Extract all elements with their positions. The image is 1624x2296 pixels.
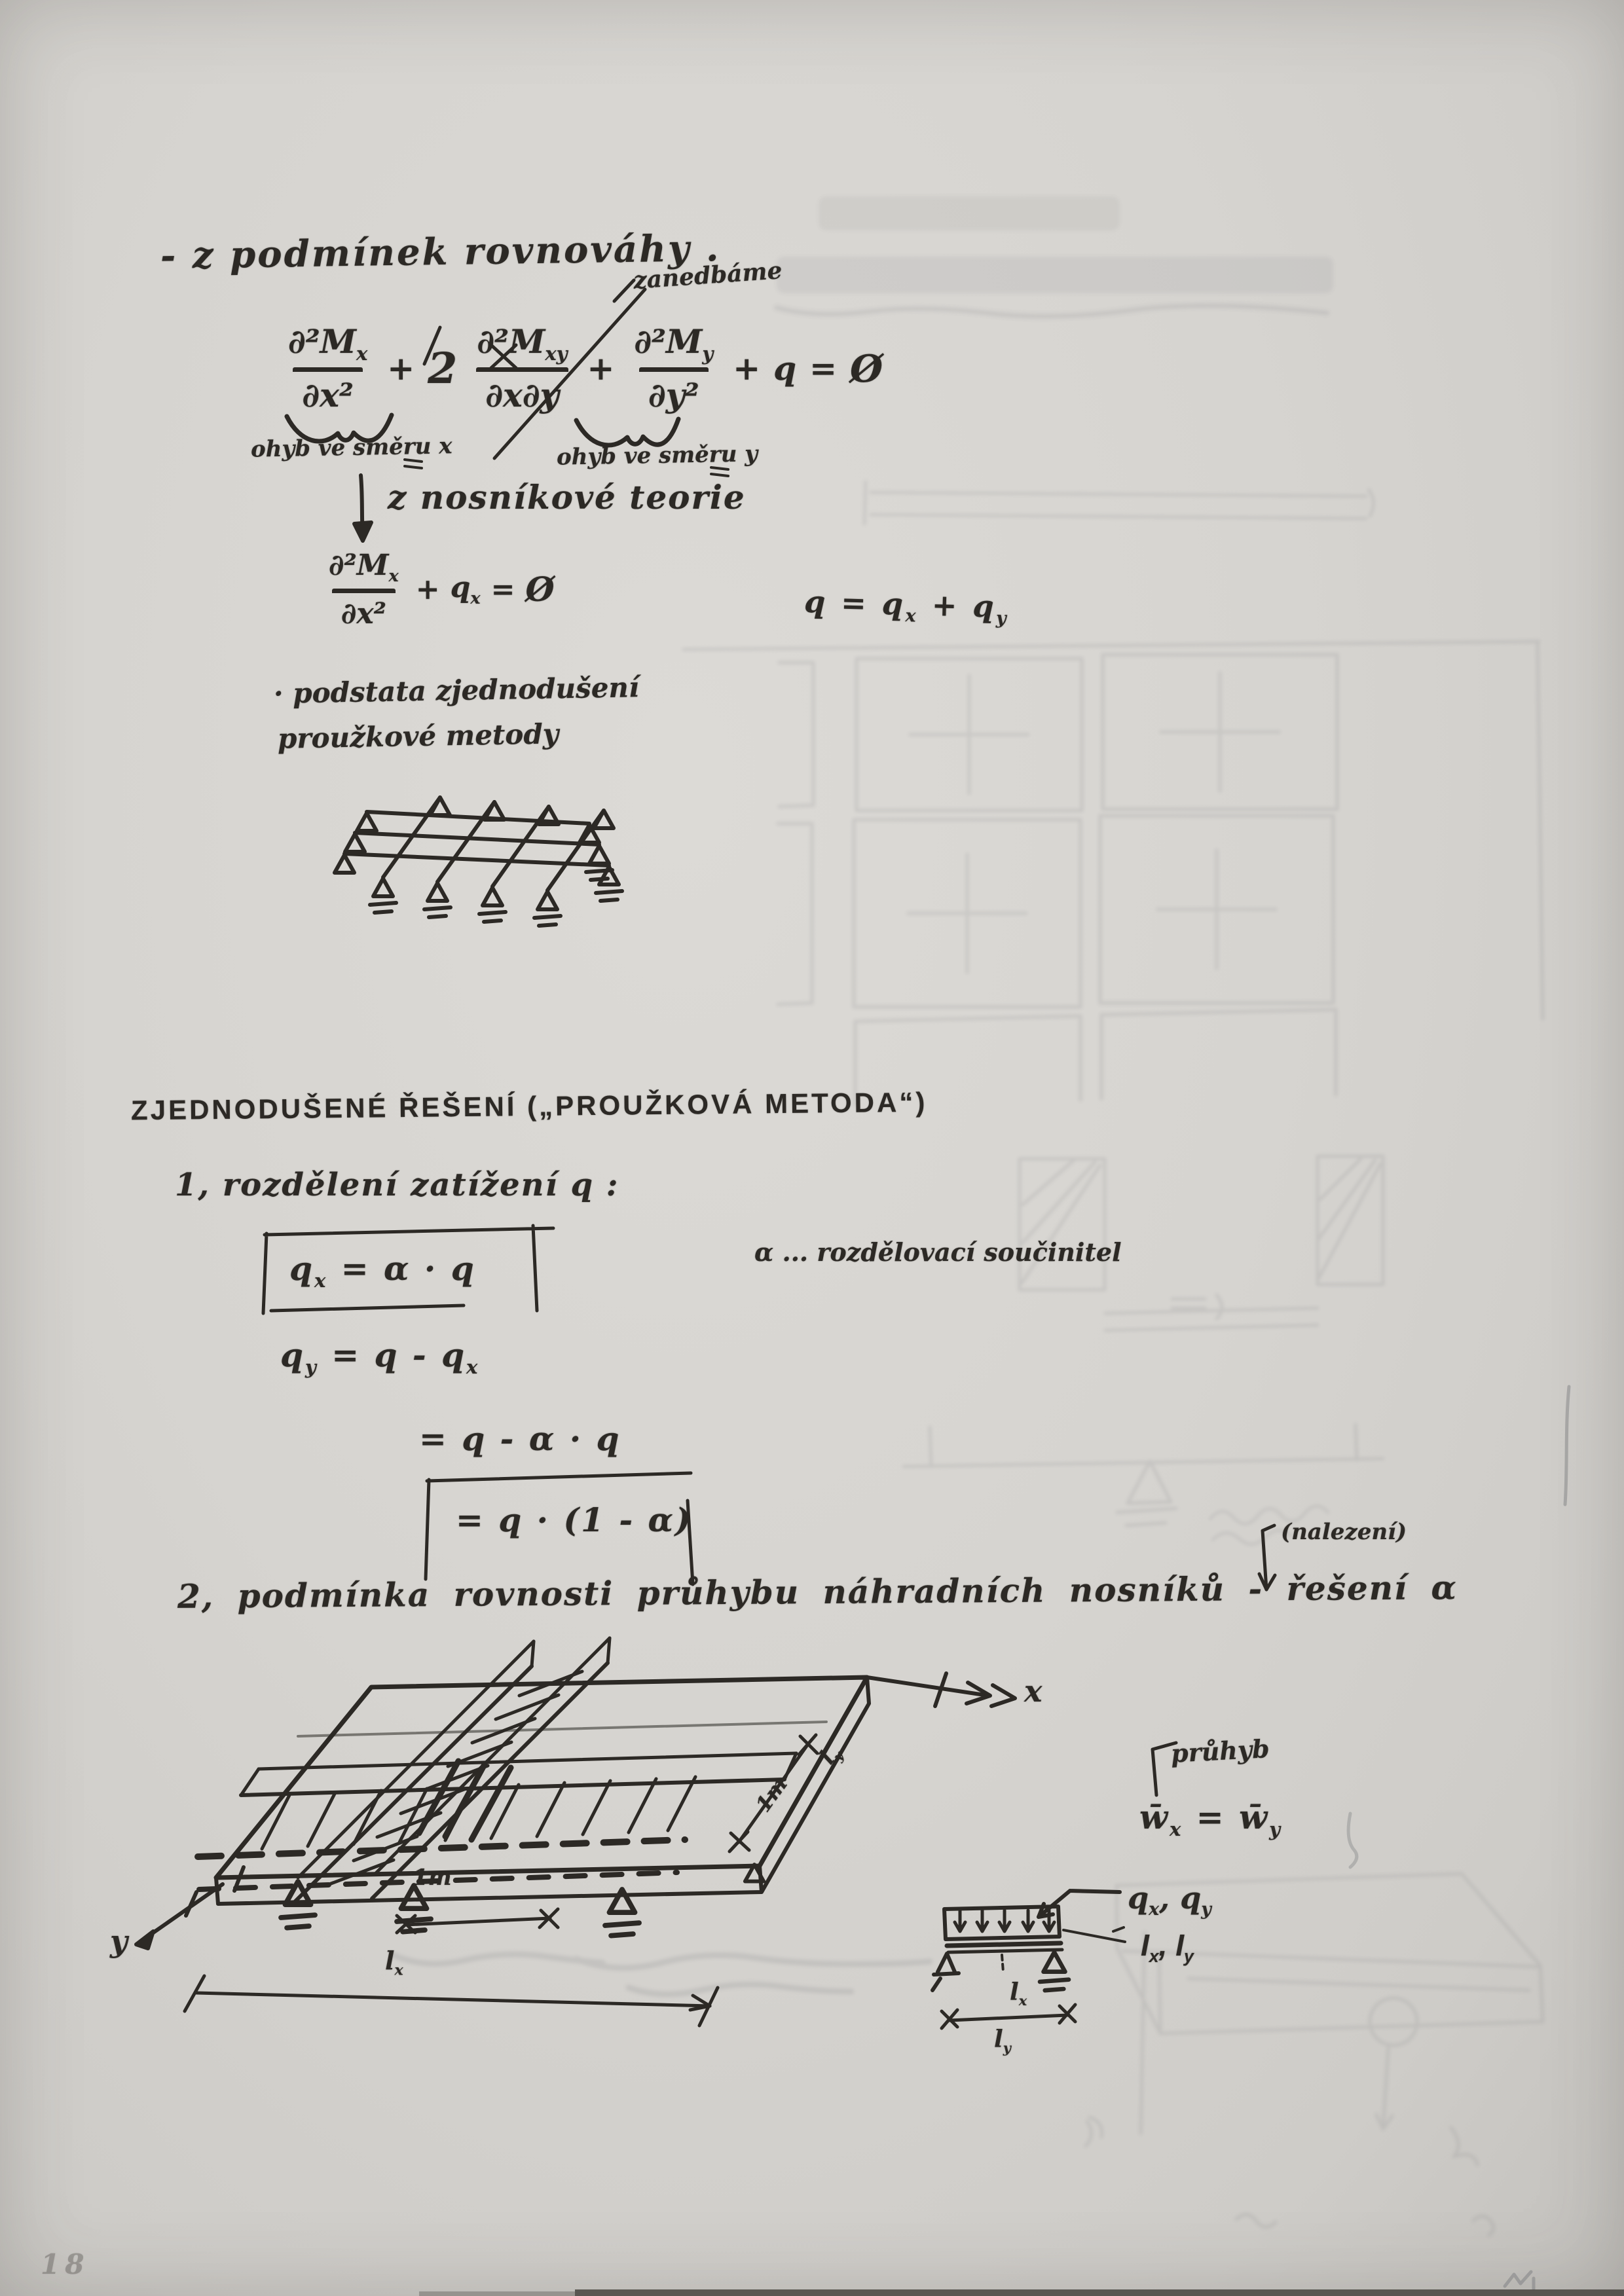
label-bend-y: ohyb ve směru y <box>557 441 758 470</box>
dim-lx-beam: lx <box>1010 1978 1027 2009</box>
math-term: ∂²Mx ∂x² <box>322 549 405 630</box>
beam-equation: ∂²Mx ∂x² + qx = Ø <box>322 549 555 630</box>
plate-equilibrium-equation: ∂²Mx ∂x² + 2 ∂²Mxy ∂x∂y + ∂²My ∂y² + q =… <box>282 322 883 414</box>
deflection-equation: w̄x = w̄y <box>1139 1798 1282 1840</box>
equation-qy: qy = q - qx <box>280 1336 479 1378</box>
equation-qy-3: = q · (1 - α) <box>456 1501 693 1539</box>
pin-support-icon <box>932 1954 959 1990</box>
math-token: ∂y² <box>639 367 709 414</box>
derive-arrow-icon <box>354 475 371 541</box>
callout-arrows <box>1039 1891 1125 1942</box>
math-token: ∂x² <box>293 367 362 414</box>
math-token: = <box>491 573 515 606</box>
dim-1m-front: 1m <box>413 1865 452 1891</box>
note-alpha: α ... rozdělovací součinitel <box>754 1237 1122 1267</box>
grid-sketch <box>335 797 622 926</box>
label-qx-qy: qx, qy <box>1128 1880 1211 1920</box>
roller-support-icon <box>1044 1952 1065 1972</box>
math-token: Ø <box>525 570 554 609</box>
math-token: ∂²Mx <box>322 549 405 589</box>
math-token: ∂²Mx <box>282 322 374 367</box>
dim-lx-front: lx <box>385 1946 403 1979</box>
math-token: q <box>773 349 796 388</box>
x-axis-icon <box>867 1673 1015 1706</box>
note-nalezeni: (nalezení) <box>1281 1519 1407 1545</box>
equation-qx: qx = α · q <box>289 1249 476 1292</box>
axis-y-label: y <box>110 1923 128 1959</box>
math-term: ∂²Mxy ∂x∂y <box>470 322 574 414</box>
label-bend-x: ohyb ve směru x <box>251 433 452 462</box>
math-token: ∂x∂y <box>476 367 568 414</box>
math-token: + <box>416 573 440 606</box>
math-token: + <box>387 349 415 388</box>
plate-3d-sketch <box>136 1638 1015 2026</box>
label-ix-iy: Ix, Iy <box>1141 1927 1194 1967</box>
dim-ly-beam: ly <box>994 2026 1011 2056</box>
y-axis-icon <box>136 1884 223 1948</box>
math-token: ∂²My <box>627 322 720 367</box>
math-token: ∂x² <box>332 589 396 630</box>
axis-x-label: x <box>1024 1673 1042 1709</box>
note-essence-2: proužkové metody <box>278 718 559 754</box>
notebook-page: - z podmínek rovnováhy . zanedbáme ∂²Mx … <box>0 0 1624 2296</box>
step1-title: 1, rozdělení zatížení q : <box>175 1167 619 1203</box>
math-term: ∂²My ∂y² <box>627 322 720 414</box>
math-term: ∂²Mx ∂x² <box>282 322 374 414</box>
load-sum-equation: q = qx + qy <box>803 584 1010 629</box>
math-token: = <box>809 349 837 388</box>
math-token: qx <box>451 571 481 608</box>
math-token: + <box>733 349 760 388</box>
math-token: + <box>587 349 615 388</box>
beam-dimension <box>942 2005 1075 2028</box>
note-essence-1: · podstata zjednodušení <box>274 671 640 710</box>
math-token: 2 <box>428 344 457 393</box>
page-number: 18 <box>41 2248 89 2280</box>
math-token: ∂²Mxy <box>470 322 574 367</box>
note-pruhyb: průhyb <box>1170 1734 1270 1768</box>
math-token: Ø <box>850 346 883 391</box>
note-beam-theory: z nosníkové teorie <box>388 478 746 517</box>
equation-qy-2: = q - α · q <box>419 1419 621 1458</box>
